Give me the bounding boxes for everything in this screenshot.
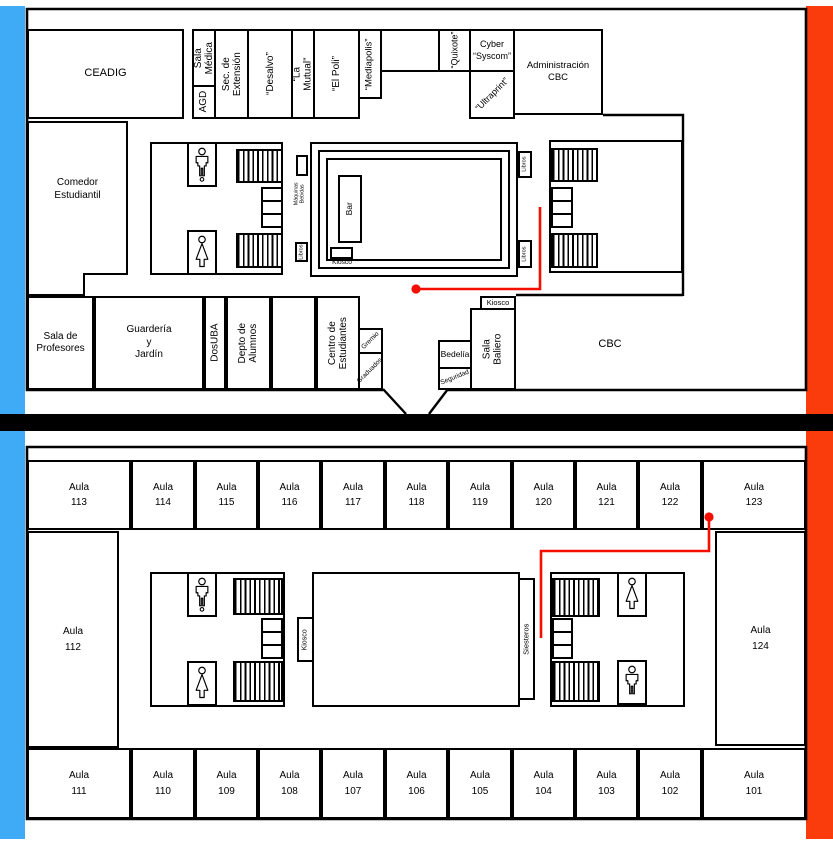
lower-right-stairs-up [552,578,600,617]
room-graduados: Graduados [358,352,383,390]
room-sec-de-extension: Sec. de Extensión [214,29,249,119]
room-aula-113: Aula113 [27,460,131,530]
room-gremio: Gremio [358,328,383,354]
floor-separator-band [0,414,833,431]
upper-left-stairs-up [236,149,283,183]
lower-left-mens-room [187,572,217,617]
room-administracion-cbc: Administración CBC [513,29,603,115]
room-ultraprint: “Ultraprint” [469,70,515,119]
orange-edge-stripe-upper [806,6,833,414]
room-aula-114: Aula114 [131,460,195,530]
room-aula-118: Aula118 [385,460,448,530]
womens-room-icon [623,576,641,614]
room-centro-de-estudiantes: Centro de Estudiantes [316,296,360,390]
room-sala-baliero: Sala Baliero [470,308,516,390]
room-aula-109: Aula109 [195,748,258,819]
libros-box-right-bottom: Libros [518,240,532,268]
upper-left-stair-landing [261,187,283,228]
room-aula-111: Aula111 [27,748,131,819]
room-guarderia-y-jardin: Guardería y Jardín [94,296,204,390]
room-aula-103: Aula103 [575,748,638,819]
libros-box-left: Libros [295,242,308,262]
room-aula-108: Aula108 [258,748,321,819]
room-cbc-label: CBC [560,330,660,360]
room-aula-107: Aula107 [321,748,385,819]
maquinas-bebidas-label: Máquinas Bebidas [287,178,313,210]
route-upper-start-dot [411,284,420,293]
mens-room-icon [193,576,211,614]
womens-room-icon [193,665,211,703]
lower-left-stairs-up [233,578,283,615]
room-aula-120: Aula120 [512,460,575,530]
room-aula-110: Aula110 [131,748,195,819]
lower-left-womens-room [187,661,217,706]
lower-left-stair-landing [261,618,283,659]
siesteros-box: Siesteros [518,578,535,700]
room-depto-de-alumnos: Depto de Alumnos [226,296,271,390]
room-cyber-syscom: Cyber “Syscom” [469,29,515,72]
mens-room-icon [193,146,211,184]
room-el-poli: “El Poli” [313,29,360,119]
room-aula-102: Aula102 [638,748,702,819]
lower-right-womens-room [617,572,647,617]
orange-edge-stripe-lower [806,431,833,839]
room-aula-112: Aula112 [27,531,119,748]
room-aula-105: Aula105 [448,748,512,819]
room-aula-124: Aula124 [715,531,806,746]
room-ceadig: CEADIG [27,29,184,119]
lower-central-hall [312,572,520,707]
room-la-mutual: “La Mutual” [291,29,315,119]
room-aula-122: Aula122 [638,460,702,530]
room-agd: AGD [192,85,216,119]
libros-box-right-top: Libros [518,151,532,178]
blue-edge-stripe-lower [0,431,25,839]
upper-womens-room [187,230,217,275]
room-quixote: “Quixote” [438,29,471,72]
upper-left-stairs-down [236,233,283,268]
room-sala-de-profesores: Sala de Profesores [27,296,94,390]
room-aula-121: Aula121 [575,460,638,530]
kiosco-patio-label: Kiosco [322,258,362,268]
lower-right-stair-landing [552,618,573,659]
upper-mens-room [187,142,217,187]
room-seguridad: Seguridad [438,367,472,390]
room-aula-104: Aula104 [512,748,575,819]
room-unlabeled-bottom [271,296,316,390]
floor-plan: CEADIG Sala Médica AGD Sec. de Extensión… [0,0,833,844]
kiosco-lower-box: Kiosco [297,617,314,662]
room-sala-medica: Sala Médica [192,29,216,87]
room-bedelia: Bedelía [438,340,472,369]
room-aula-106: Aula106 [385,748,448,819]
room-aula-116: Aula116 [258,460,321,530]
blue-edge-stripe-upper [0,6,25,414]
room-bar: Bar [338,175,362,243]
lower-right-stairs-down [552,661,600,702]
room-aula-101: Aula101 [702,748,806,819]
room-aula-123: Aula123 [702,460,806,530]
room-comedor-estudiantil: Comedor Estudiantil [27,121,128,296]
room-aula-117: Aula117 [321,460,385,530]
maquinas-bebidas-box [296,155,308,176]
room-aula-119: Aula119 [448,460,512,530]
room-unlabeled-top [380,29,440,72]
upper-right-stair-landing [551,187,573,228]
comedor-notch [83,273,128,296]
womens-room-icon [193,234,211,272]
room-desalvo: “Desalvo” [247,29,293,119]
lower-left-stairs-down [233,661,283,702]
room-dosuba: DosUBA [204,296,226,390]
entrance-notch-walls [383,389,448,414]
upper-right-stairs-down [551,233,598,268]
room-mediapolis: “Mediapolis” [358,29,382,99]
room-aula-115: Aula115 [195,460,258,530]
mens-room-icon [623,664,641,702]
upper-right-stairs-up [551,148,598,182]
lower-right-mens-room [617,660,647,705]
